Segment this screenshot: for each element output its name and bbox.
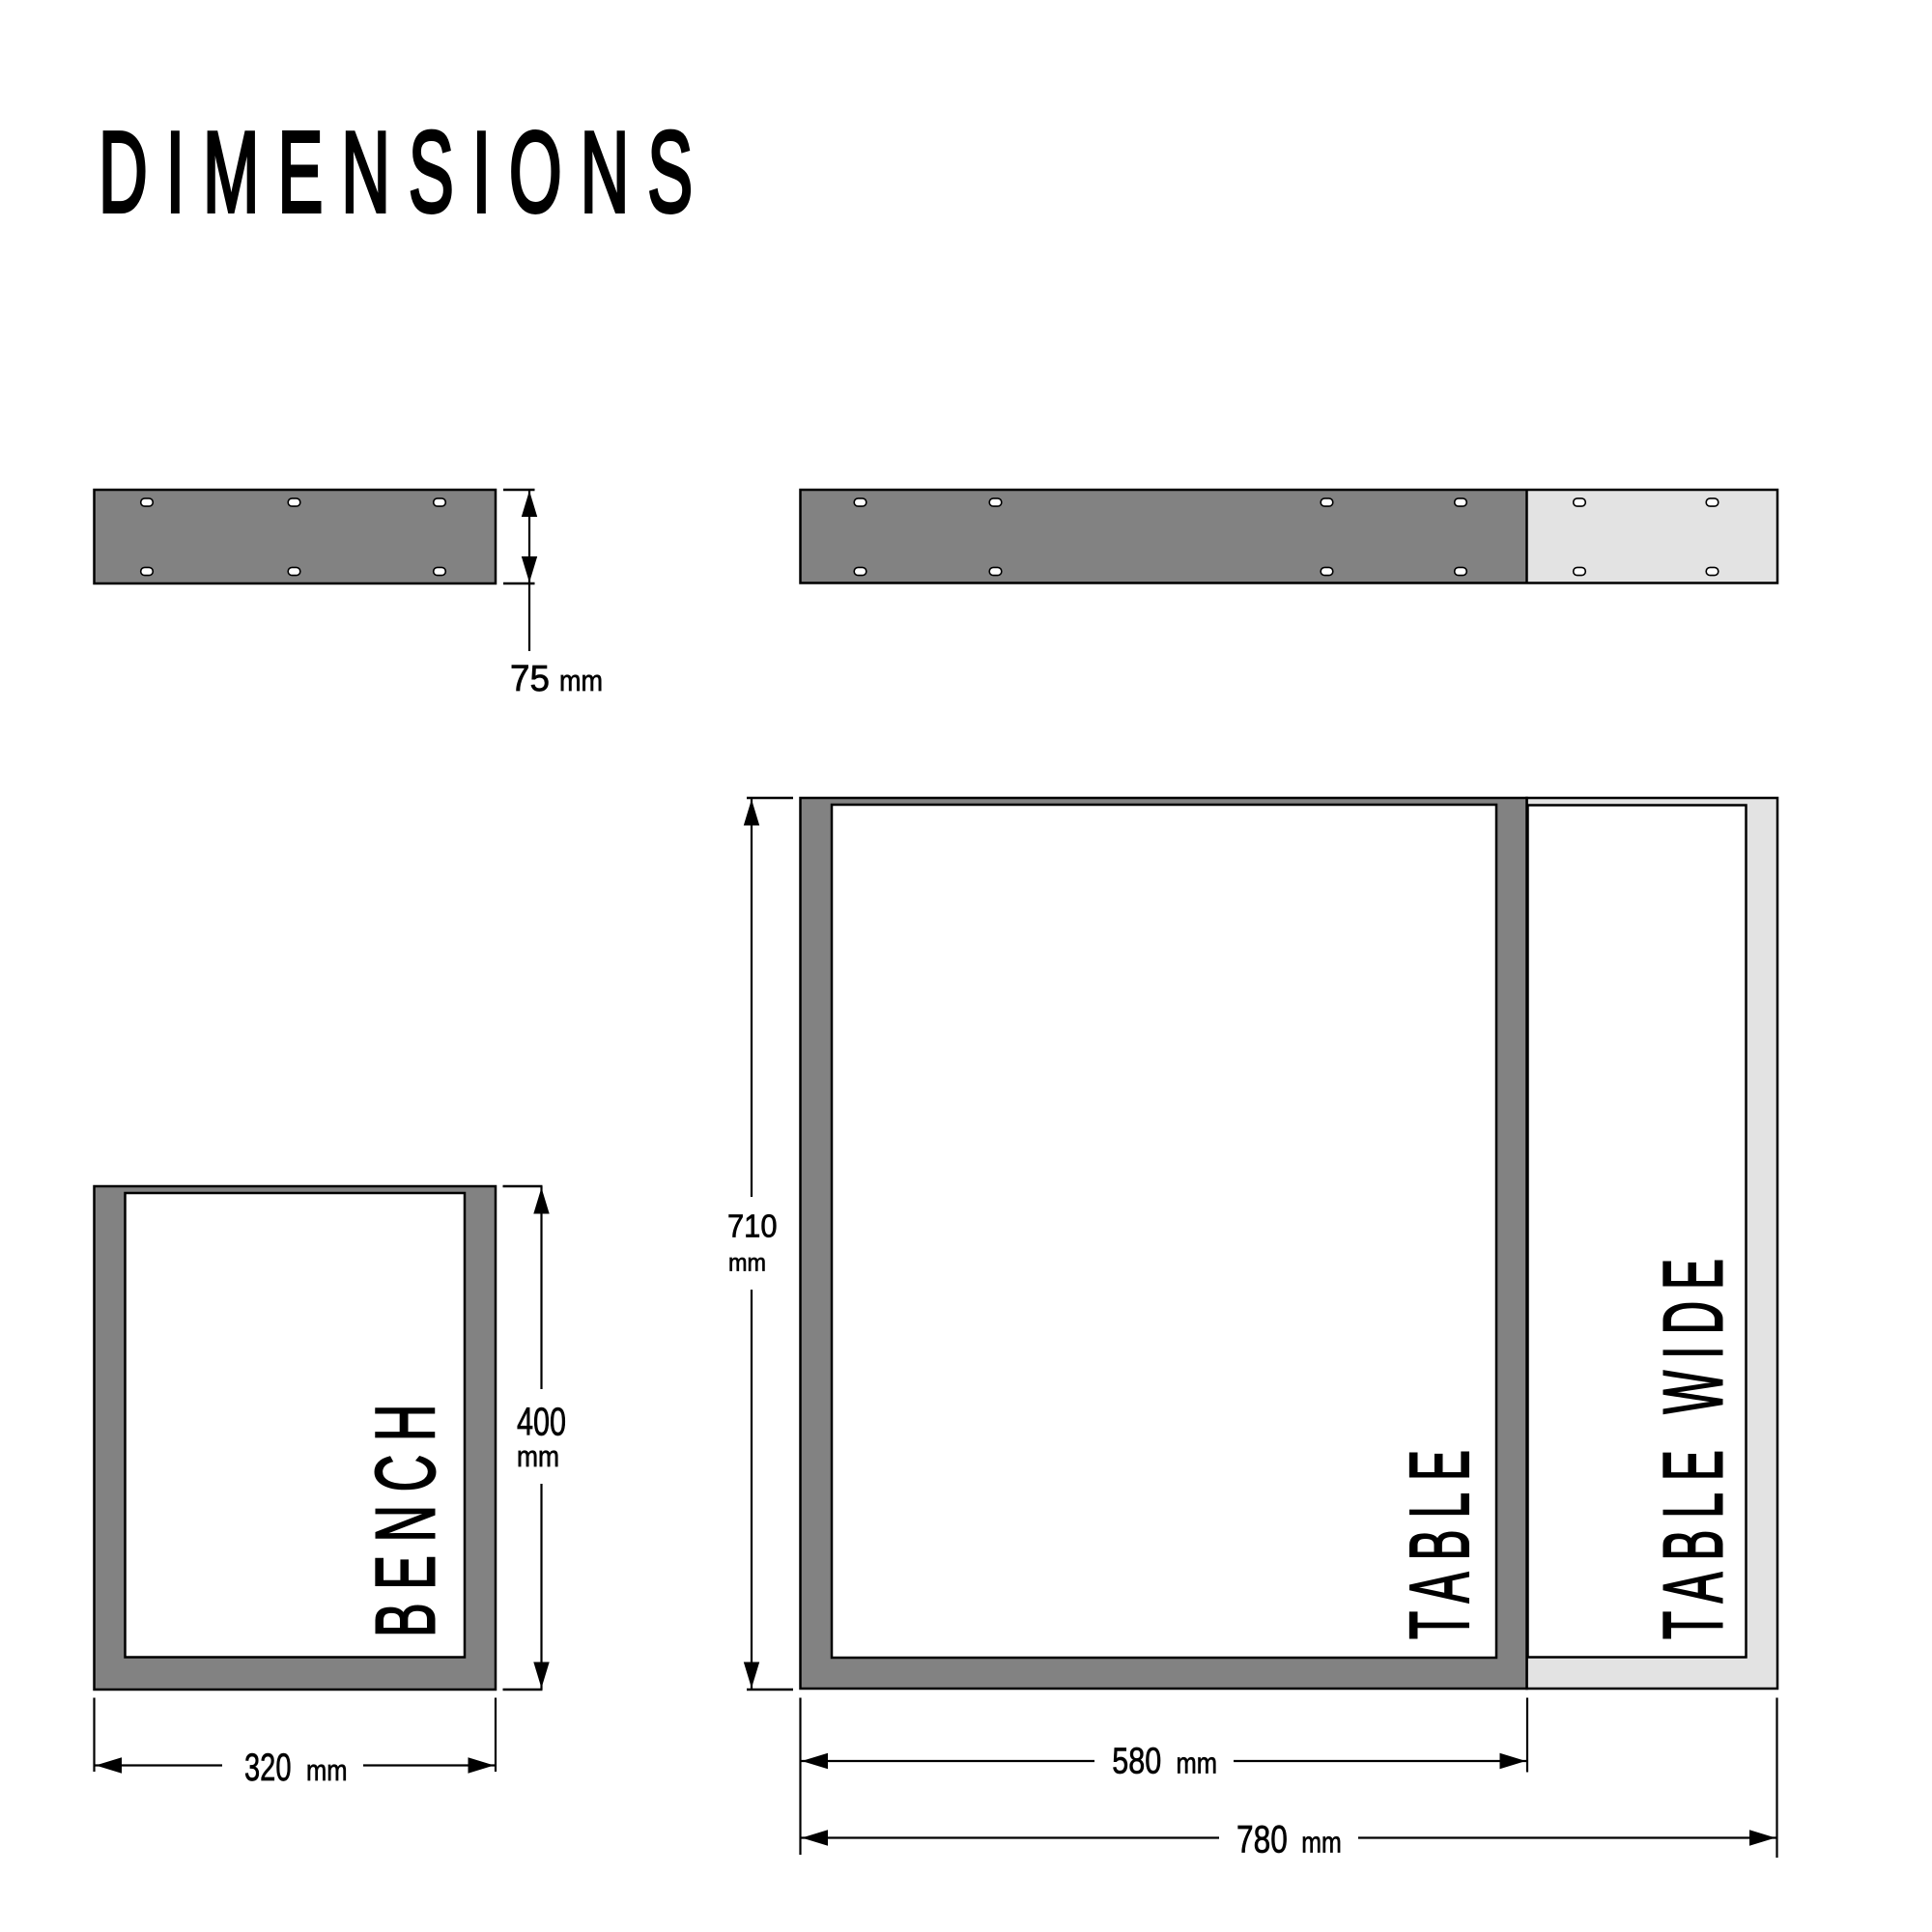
svg-text:400: 400 (517, 1400, 566, 1444)
svg-text:710: 710 (727, 1208, 778, 1244)
svg-text:580: 580 (1112, 1742, 1161, 1782)
svg-text:mm: mm (306, 1753, 348, 1787)
svg-text:DIMENSIONS: DIMENSIONS (99, 108, 711, 237)
svg-text:mm: mm (1301, 1826, 1342, 1860)
svg-text:780: 780 (1236, 1819, 1288, 1861)
svg-text:TABLE WIDE: TABLE WIDE (1647, 1247, 1741, 1639)
svg-text:mm: mm (559, 664, 603, 697)
svg-text:mm: mm (517, 1439, 559, 1473)
svg-text:75: 75 (510, 659, 550, 699)
svg-text:BENCH: BENCH (359, 1391, 453, 1637)
svg-text:TABLE: TABLE (1393, 1438, 1487, 1639)
svg-text:320: 320 (244, 1747, 292, 1789)
svg-text:mm: mm (728, 1250, 766, 1277)
svg-text:mm: mm (1177, 1747, 1218, 1780)
